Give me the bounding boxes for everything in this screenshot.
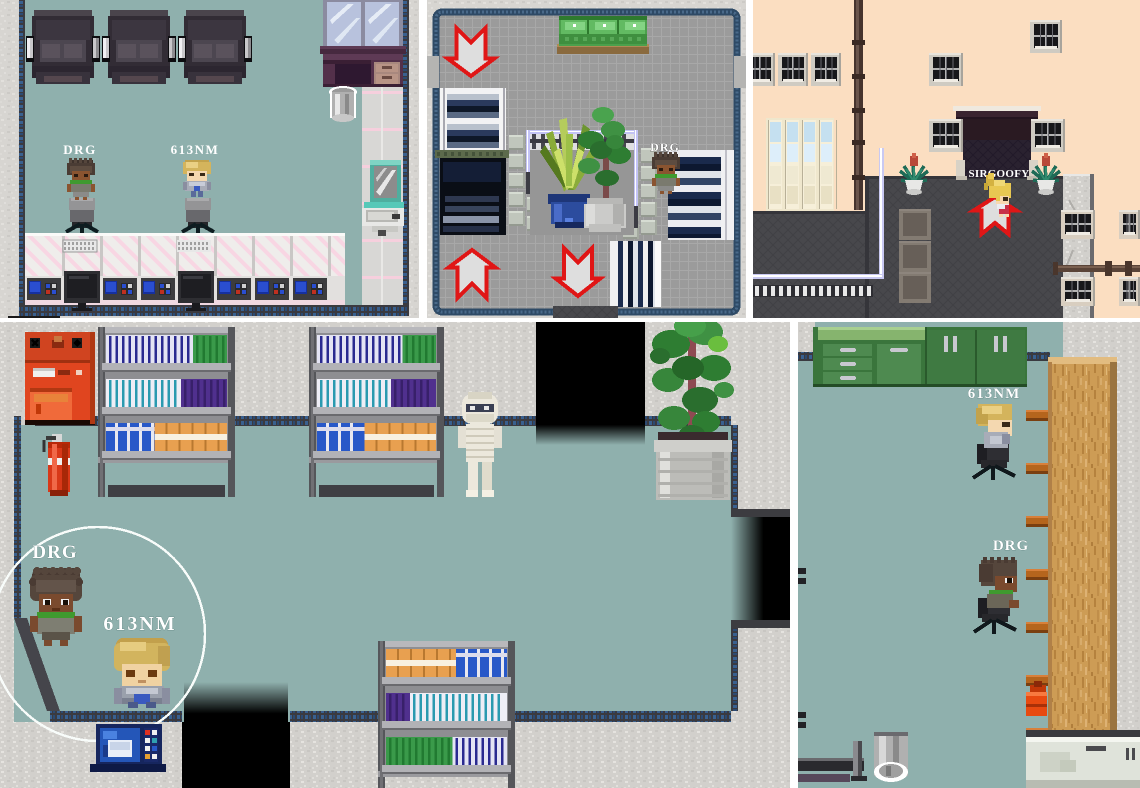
svg-text:DRG: DRG bbox=[63, 142, 96, 157]
svg-text:613NM: 613NM bbox=[968, 386, 1021, 402]
svg-text:SIRGOOFY: SIRGOOFY bbox=[968, 168, 1029, 180]
svg-text:DRG: DRG bbox=[650, 140, 680, 154]
svg-text:DRG: DRG bbox=[993, 538, 1029, 554]
svg-text:613NM: 613NM bbox=[103, 613, 176, 635]
svg-text:613NM: 613NM bbox=[171, 142, 220, 157]
svg-text:DRG: DRG bbox=[32, 542, 77, 563]
